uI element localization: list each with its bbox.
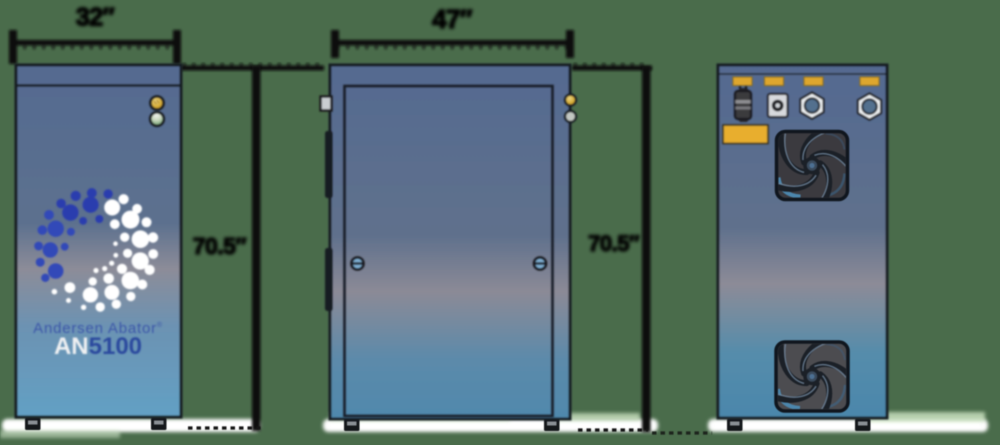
svg-text:70.5″: 70.5″ bbox=[193, 233, 247, 259]
svg-text:70.5″: 70.5″ bbox=[588, 231, 640, 256]
svg-text:47″: 47″ bbox=[432, 4, 472, 34]
svg-text:32″: 32″ bbox=[76, 4, 115, 32]
svg-text:AN5100: AN5100 bbox=[54, 333, 142, 360]
